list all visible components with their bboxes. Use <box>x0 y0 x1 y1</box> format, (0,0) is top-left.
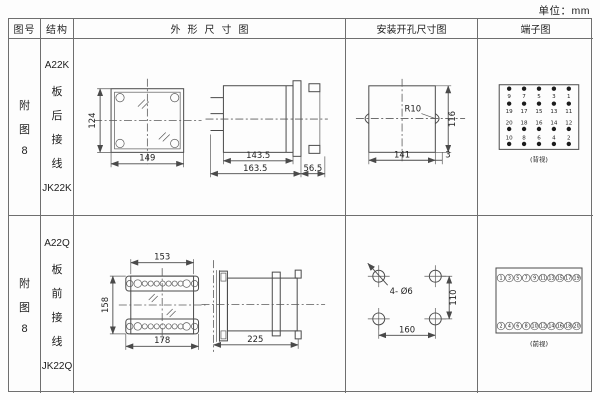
pin-number: 11 <box>565 109 573 115</box>
fig-char: 附 <box>19 97 30 113</box>
structure-char: 接 <box>52 309 63 325</box>
unit-label: 单位：mm <box>539 3 591 18</box>
structure-char: 线 <box>52 333 63 349</box>
dim-label-depth: 225 <box>247 334 263 344</box>
structure-char: 线 <box>52 155 63 171</box>
pin-number: 6 <box>516 324 519 330</box>
pin-number: 3 <box>552 94 556 100</box>
pin-number: 2 <box>567 135 571 141</box>
front-view: 153 <box>100 252 206 350</box>
pin-number: 14 <box>548 324 554 330</box>
outline-drawing-jk22k: 124 149 143.5 163.5 <box>74 39 345 215</box>
dim-label-height: 124 <box>87 112 97 128</box>
pin-number: 5 <box>537 94 541 100</box>
mounting-cell-row1: R10 116 141 3 <box>346 39 478 216</box>
pin-number: 9 <box>533 276 536 282</box>
view-label: (背视) <box>530 154 548 163</box>
pin-number: 20 <box>574 324 580 330</box>
pin-number: 10 <box>532 324 538 330</box>
terminal-cell-row2: 1 3 5 7 9 11 13 15 17 19 2 4 6 8 10 <box>478 216 593 393</box>
fig-char: 图 <box>19 299 30 315</box>
dim-label-vertical-pitch: 110 <box>448 290 458 306</box>
panel-cutout: R10 116 141 3 <box>356 79 465 164</box>
col-header-outline: 外形尺寸图 <box>74 19 346 39</box>
structure-char: 接 <box>52 131 63 147</box>
col-header-mounting: 安装开孔尺寸图 <box>346 19 478 39</box>
pin-number: 6 <box>537 135 541 141</box>
outline-drawing-jk22q: 153 <box>74 216 345 393</box>
model-code: JK22K <box>42 183 71 194</box>
pin-number: 2 <box>499 324 502 330</box>
pin-number: 14 <box>550 121 558 127</box>
dim-label-height: 158 <box>100 297 110 313</box>
pin-number: 19 <box>574 276 580 282</box>
dim-label-top-width: 153 <box>154 252 170 262</box>
dim-label-width: 178 <box>154 335 170 345</box>
dim-label-cut-height: 116 <box>447 111 457 127</box>
mounting-holes: 4- Ø6 110 160 <box>368 263 458 338</box>
side-view: 225 <box>202 260 326 352</box>
pin-number: 7 <box>525 276 528 282</box>
terminal-screw-row-top: 1 3 5 7 9 11 13 15 17 19 <box>497 274 580 282</box>
pin-number: 5 <box>516 276 519 282</box>
terminal-screws <box>142 281 183 329</box>
dim-label-front-depth: 56.5 <box>304 163 323 173</box>
col-header-fig-no: 图号 <box>9 19 41 39</box>
pin-number: 17 <box>565 276 571 282</box>
dim-label-offset: 3 <box>445 149 450 159</box>
terminal-cell-row1: 9 7 5 3 1 19 17 15 13 11 20 18 16 14 12 <box>478 39 593 216</box>
pin-number: 8 <box>525 324 528 330</box>
col-header-structure: 结构 <box>41 19 74 39</box>
pin-number: 15 <box>557 276 563 282</box>
structure-cell-row1: A22K 板 后 接 线 JK22K <box>41 39 74 216</box>
pin-number: 20 <box>506 121 514 127</box>
structure-char: 后 <box>52 107 63 123</box>
dim-label-width: 149 <box>139 152 155 162</box>
pin-number: 12 <box>565 121 572 127</box>
side-view: 143.5 163.5 56.5 <box>206 81 328 177</box>
mounting-drawing-jk22k: R10 116 141 3 <box>346 39 477 215</box>
fig-no-cell-row1: 附 图 8 <box>9 39 41 216</box>
dim-label-total-depth: 163.5 <box>243 163 267 173</box>
pin-number: 11 <box>540 276 546 282</box>
pin-number: 16 <box>535 121 543 127</box>
dim-label-horizontal-pitch: 160 <box>399 324 415 334</box>
fig-char: 图 <box>19 121 30 137</box>
model-code: A22K <box>45 60 69 71</box>
pin-number: 16 <box>557 324 563 330</box>
structure-char: 板 <box>52 261 63 277</box>
dim-label-case-depth: 143.5 <box>246 150 270 160</box>
pin-number: 15 <box>535 109 543 115</box>
outline-cell-row2: 153 <box>74 216 346 393</box>
pin-number: 1 <box>567 94 571 100</box>
pin-number: 3 <box>508 276 511 282</box>
pin-number: 19 <box>506 109 514 115</box>
fig-char: 8 <box>21 323 27 335</box>
model-code: A22Q <box>44 238 70 249</box>
pin-number: 9 <box>507 94 511 100</box>
pin-number: 18 <box>565 324 571 330</box>
pin-number: 8 <box>522 135 526 141</box>
fig-no-cell-row2: 附 图 8 <box>9 216 41 393</box>
spec-table: 图号 结构 外形尺寸图 安装开孔尺寸图 端子图 附 图 8 A22K 板 后 接… <box>8 18 592 392</box>
front-view: 124 149 <box>87 79 201 167</box>
relay-datasheet-page: 单位：mm 图号 结构 外形尺寸图 安装开孔尺寸图 端子图 附 图 8 A22K… <box>0 0 600 400</box>
dim-label-cut-width: 141 <box>394 149 410 159</box>
pin-number: 1 <box>499 276 502 282</box>
pin-number: 10 <box>506 135 514 141</box>
model-code: JK22Q <box>42 361 73 372</box>
pin-number: 13 <box>550 109 558 115</box>
structure-char: 板 <box>52 83 63 99</box>
pin-number: 18 <box>521 121 529 127</box>
fig-char: 8 <box>21 145 27 157</box>
structure-cell-row2: A22Q 板 前 接 线 JK22Q <box>41 216 74 393</box>
outline-cell-row1: 124 149 143.5 163.5 <box>74 39 346 216</box>
terminal-pins: 9 7 5 3 1 19 17 15 13 11 20 18 16 14 12 <box>506 87 573 147</box>
pin-number: 17 <box>521 109 529 115</box>
terminal-drawing-rear-view: 9 7 5 3 1 19 17 15 13 11 20 18 16 14 12 <box>478 39 593 215</box>
terminal-drawing-front-view: 1 3 5 7 9 11 13 15 17 19 2 4 6 8 10 <box>478 216 593 393</box>
hole-spec-label: 4- Ø6 <box>390 286 413 296</box>
structure-char: 前 <box>52 285 63 301</box>
pin-number: 7 <box>522 94 526 100</box>
pin-number: 13 <box>548 276 554 282</box>
mounting-cell-row2: 4- Ø6 110 160 <box>346 216 478 393</box>
col-header-terminal: 端子图 <box>478 19 593 39</box>
pin-number: 4 <box>508 324 511 330</box>
fig-char: 附 <box>19 275 30 291</box>
mounting-drawing-jk22q: 4- Ø6 110 160 <box>346 216 477 393</box>
view-label: (前视) <box>530 339 548 348</box>
terminal-screw-row-bottom: 2 4 6 8 10 12 14 16 18 20 <box>497 322 580 330</box>
radius-label: R10 <box>405 104 422 114</box>
pin-number: 12 <box>540 324 546 330</box>
pin-number: 4 <box>552 135 556 141</box>
